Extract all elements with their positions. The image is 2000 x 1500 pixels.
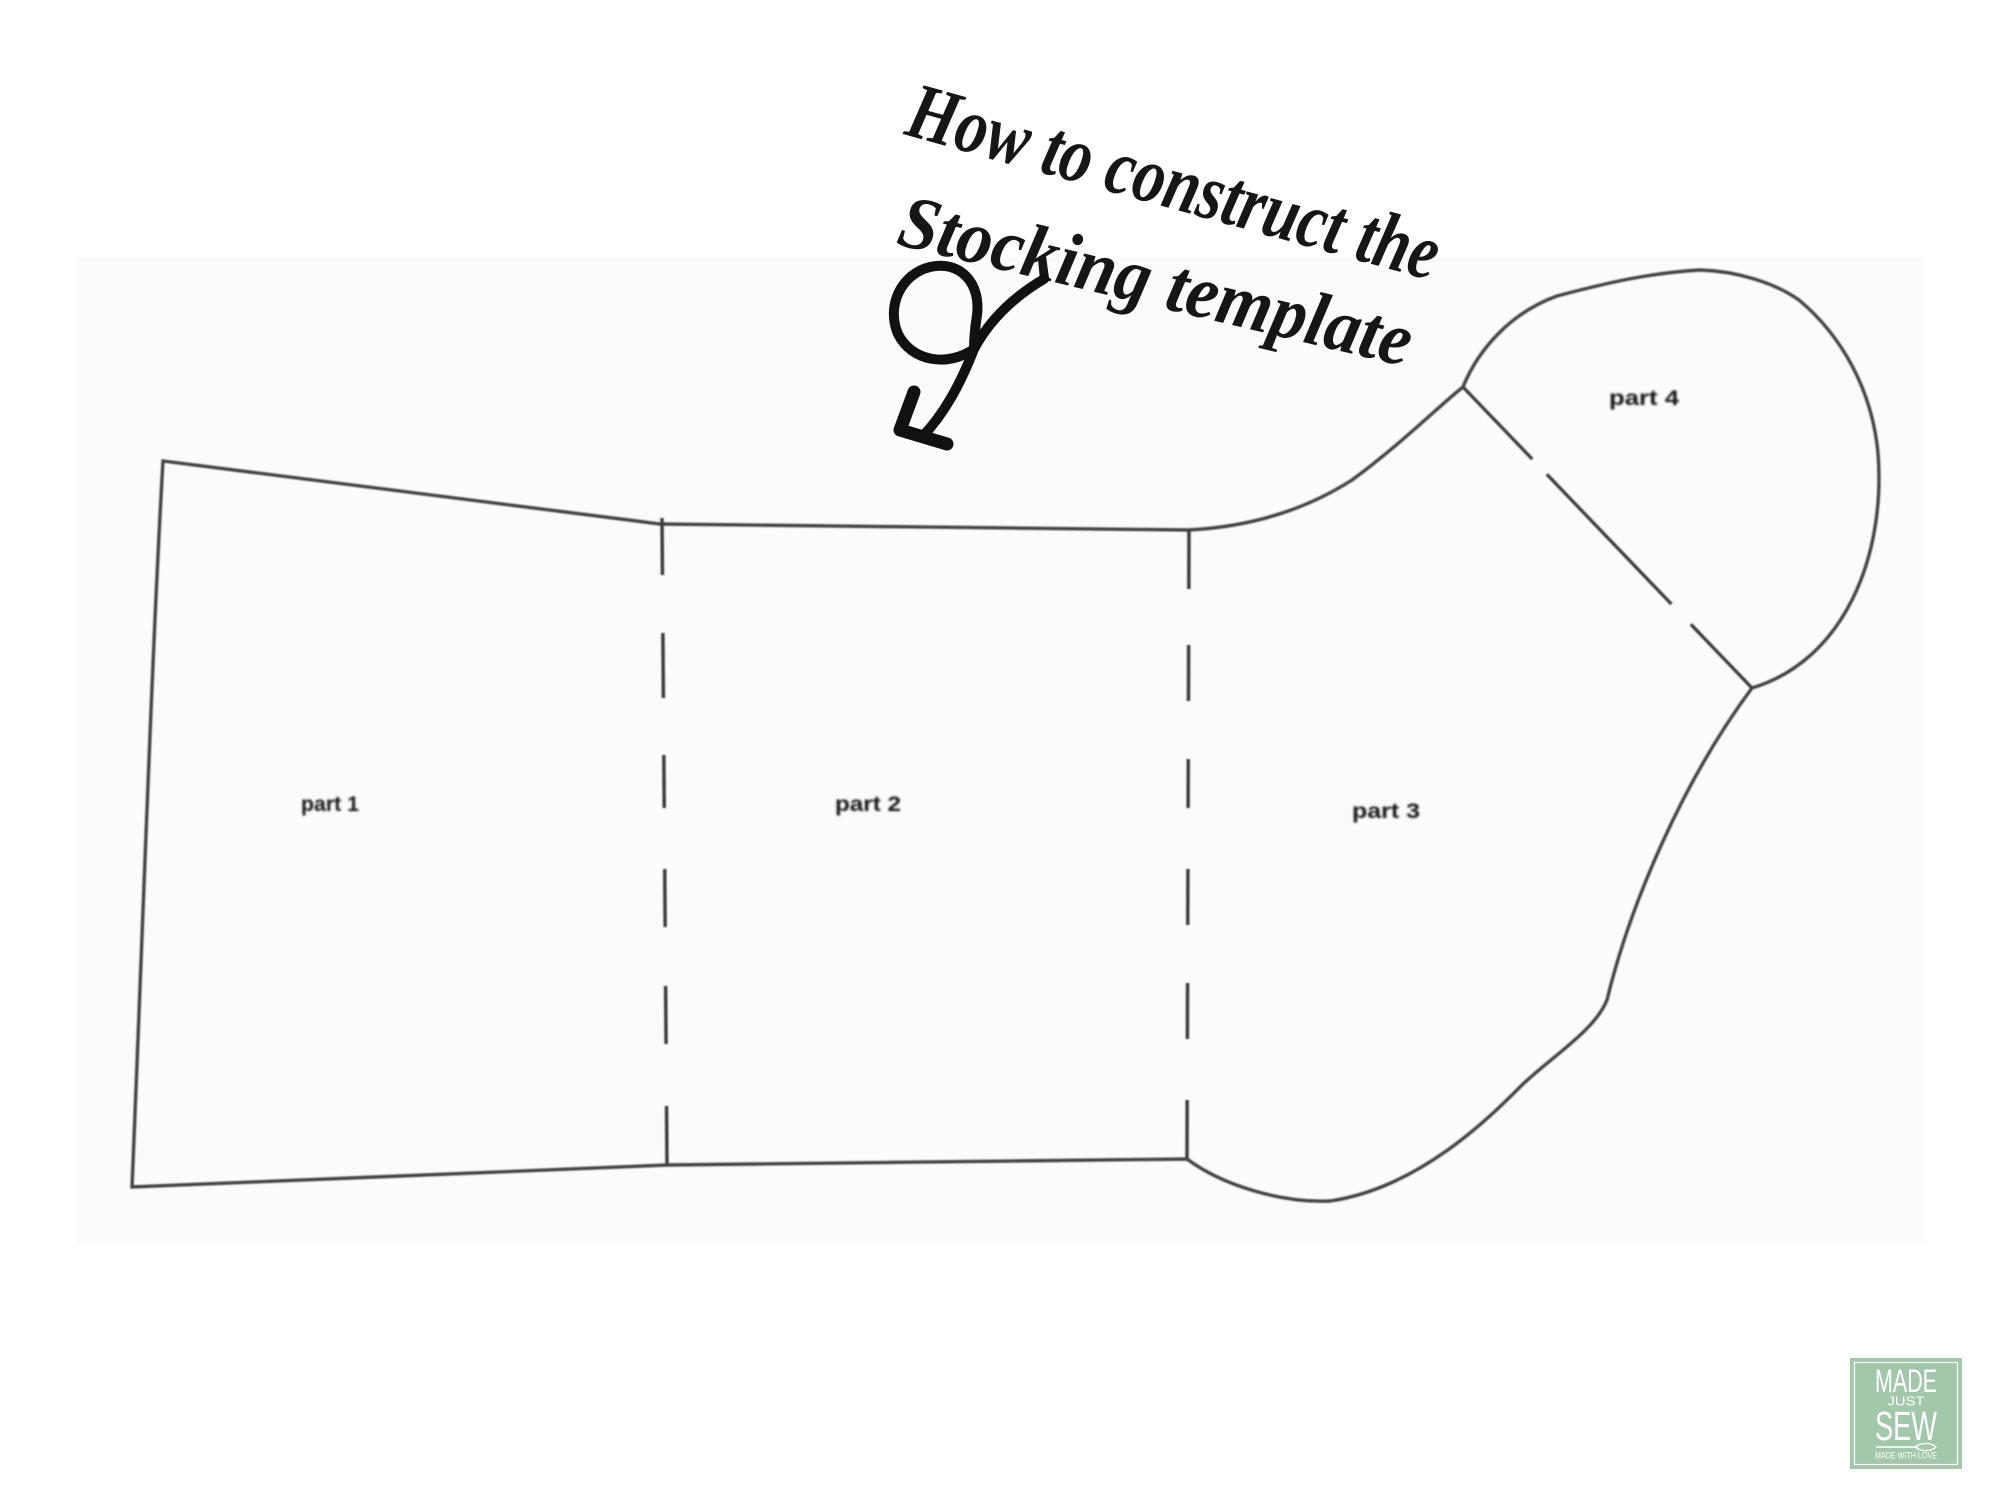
svg-text:part 4: part 4 <box>1609 387 1679 410</box>
svg-text:MADE WITH LOVE: MADE WITH LOVE <box>1875 1451 1937 1461</box>
svg-text:part 3: part 3 <box>1352 800 1420 823</box>
svg-text:SEW: SEW <box>1875 1403 1937 1449</box>
svg-text:part 1: part 1 <box>301 793 359 816</box>
svg-text:part 2: part 2 <box>835 793 901 816</box>
